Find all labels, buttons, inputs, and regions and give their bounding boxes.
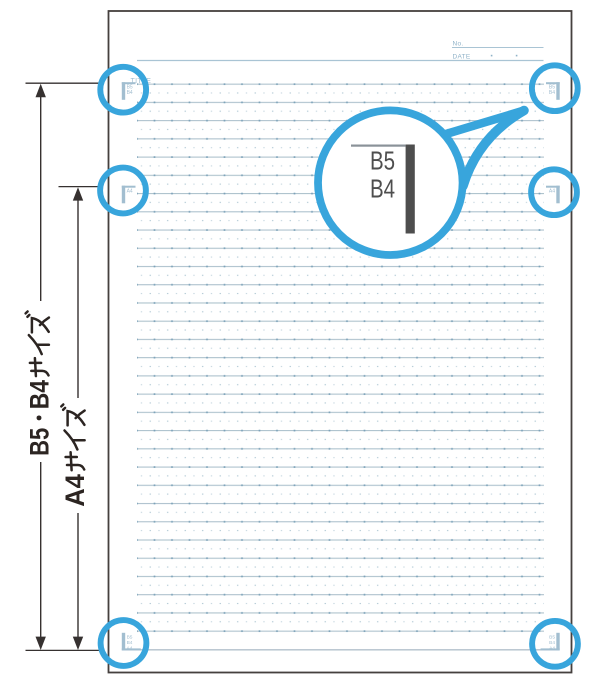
svg-text:DATE: DATE — [453, 54, 471, 61]
svg-text:A4: A4 — [549, 645, 555, 651]
svg-text:B4: B4 — [127, 90, 133, 96]
svg-text:B4: B4 — [549, 90, 555, 96]
svg-text:B4: B4 — [127, 640, 133, 646]
svg-text:A4: A4 — [127, 188, 133, 194]
svg-text:A4: A4 — [549, 188, 555, 194]
svg-text:No.: No. — [453, 41, 464, 48]
svg-text:B4: B4 — [24, 380, 54, 409]
svg-text:B5: B5 — [24, 428, 54, 456]
svg-text:B5: B5 — [549, 635, 555, 641]
svg-text:B5: B5 — [370, 146, 395, 176]
svg-text:A4: A4 — [127, 645, 133, 651]
svg-text:A4: A4 — [60, 474, 90, 507]
svg-text:B4: B4 — [549, 640, 555, 646]
svg-text:B4: B4 — [370, 174, 395, 204]
svg-text:B5: B5 — [127, 635, 133, 641]
